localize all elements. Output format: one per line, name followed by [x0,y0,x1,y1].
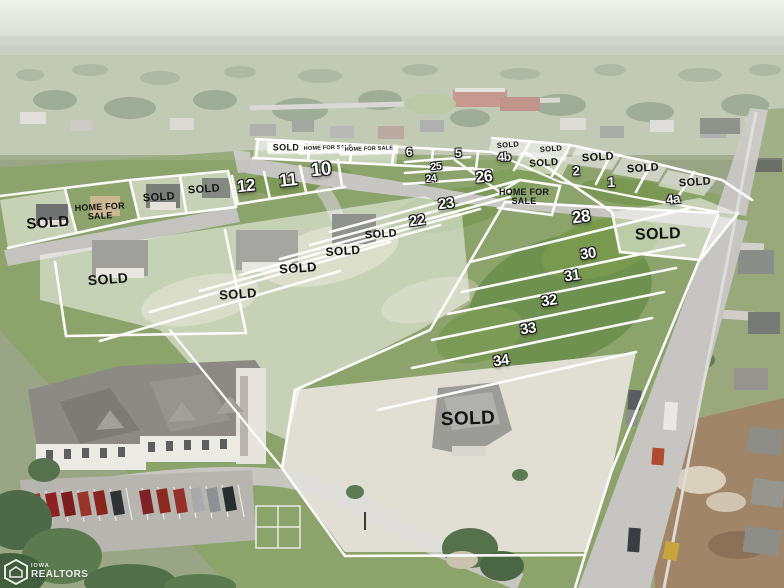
lot-label-22: 22 [408,212,426,229]
sold-label-3: SOLD [540,144,563,153]
home-for-sale-label-1: HOME FOR SALE [71,201,130,222]
sold-label-7: SOLD [679,176,712,189]
lot-label-26: 26 [475,169,493,187]
sold-label-6: SOLD [627,162,660,175]
lot-label-34: 34 [492,352,510,369]
aerial-lot-map: 121110654b252426214a2322283031323334SOLD… [0,0,784,588]
lot-label-31: 31 [563,267,581,284]
lot-label-25: 25 [430,161,442,173]
watermark-org-large: REALTORS [31,570,88,580]
lot-label-24: 24 [425,173,437,185]
lot-label-33: 33 [519,320,537,337]
sold-label-10: SOLD [143,191,176,204]
lot-label-4b: 4b [497,151,511,164]
sold-label-14: SOLD [279,260,318,276]
home-for-sale-label-2: HOME FOR SALE [495,188,553,206]
lot-label-5: 5 [455,147,462,160]
sold-label-12: SOLD [365,228,398,241]
sold-label-16: SOLD [87,270,128,287]
sold-label-13: SOLD [325,244,361,259]
lot-label-2: 2 [572,164,579,177]
sold-label-11: SOLD [26,214,70,232]
lot-label-28: 28 [571,207,591,227]
lot-labels-overlay: 121110654b252426214a2322283031323334SOLD… [0,0,784,588]
sold-label-5: SOLD [582,151,615,164]
lot-label-4a: 4a [666,192,681,207]
realtor-watermark: IOWA REALTORS [4,559,88,585]
sold-label-9: SOLD [188,183,221,196]
lot-label-10: 10 [310,159,332,180]
lot-label-23: 23 [437,195,455,212]
home-for-sale-label-4: HOME FOR SALE [340,145,399,155]
lot-label-30: 30 [579,245,597,262]
sold-label-2: SOLD [497,140,520,149]
realtor-hexagon-icon [4,559,28,585]
sold-label-8: SOLD [635,226,682,244]
lot-label-6: 6 [406,146,413,159]
sold-label-4: SOLD [529,158,559,170]
lot-label-12: 12 [236,176,256,195]
lot-label-32: 32 [540,292,558,309]
sold-label-15: SOLD [219,286,258,302]
lot-label-1: 1 [607,175,615,190]
sold-label-17: SOLD [440,408,495,429]
lot-label-11: 11 [278,170,298,190]
